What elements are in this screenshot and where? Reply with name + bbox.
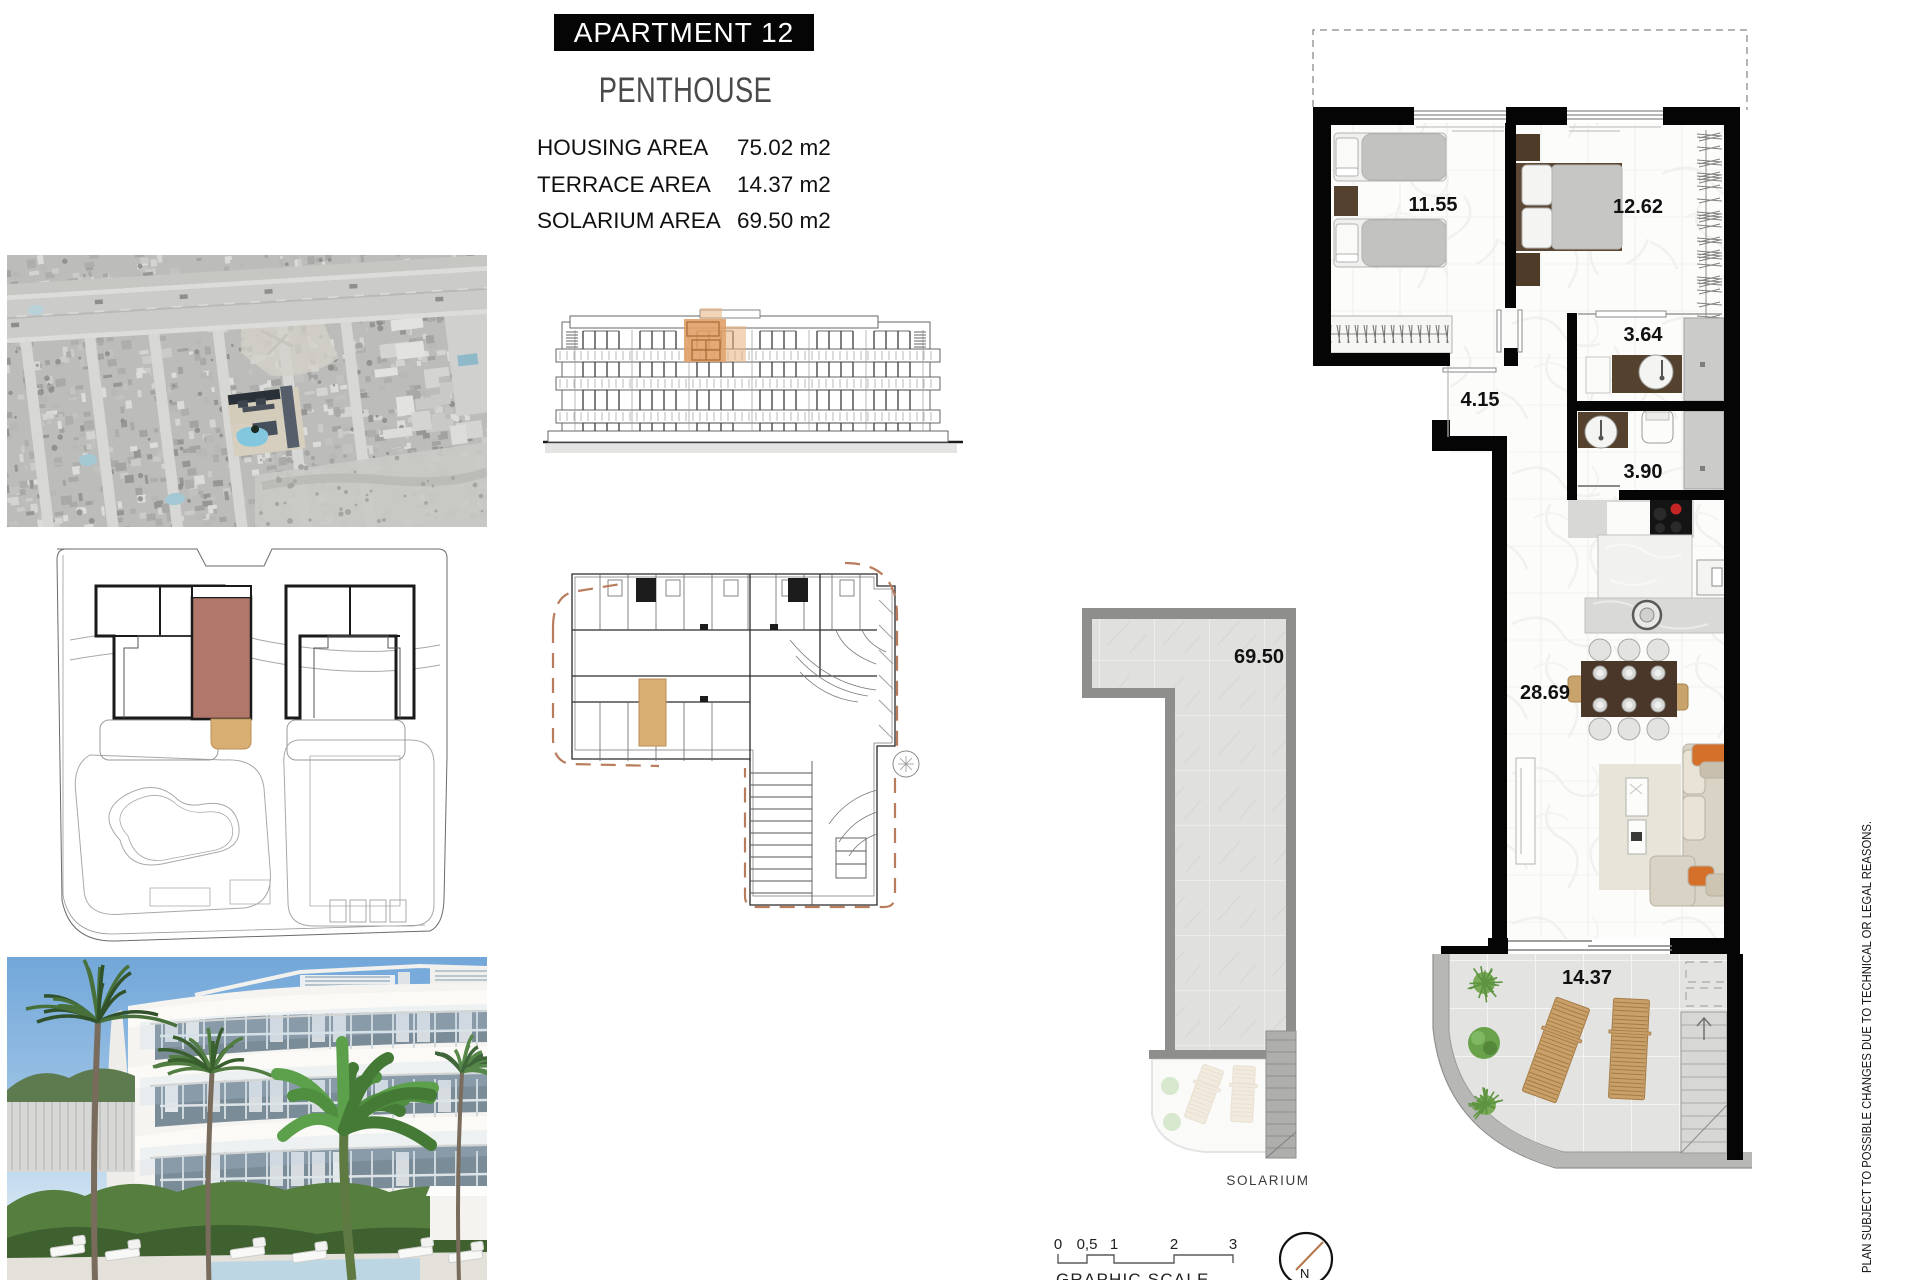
svg-text:3.90: 3.90 bbox=[1624, 461, 1663, 483]
svg-text:PLAN SUBJECT TO POSSIBLE CHANG: PLAN SUBJECT TO POSSIBLE CHANGES DUE TO … bbox=[1860, 821, 1874, 1273]
svg-text:N: N bbox=[1300, 1266, 1309, 1280]
svg-text:GRAPHIC SCALE: GRAPHIC SCALE bbox=[1056, 1270, 1210, 1280]
svg-text:3.64: 3.64 bbox=[1624, 324, 1664, 346]
svg-text:0: 0 bbox=[1054, 1236, 1062, 1253]
svg-text:0,5: 0,5 bbox=[1077, 1236, 1098, 1253]
svg-text:1: 1 bbox=[1110, 1236, 1118, 1253]
svg-text:69.50: 69.50 bbox=[1234, 646, 1284, 668]
svg-text:11.55: 11.55 bbox=[1409, 194, 1458, 216]
svg-text:28.69: 28.69 bbox=[1520, 682, 1570, 704]
svg-text:12.62: 12.62 bbox=[1613, 196, 1663, 218]
svg-text:3: 3 bbox=[1229, 1236, 1237, 1253]
svg-text:14.37: 14.37 bbox=[1562, 967, 1612, 989]
svg-text:4.15: 4.15 bbox=[1461, 389, 1500, 411]
svg-text:SOLARIUM: SOLARIUM bbox=[1226, 1173, 1309, 1188]
svg-text:2: 2 bbox=[1170, 1236, 1178, 1253]
